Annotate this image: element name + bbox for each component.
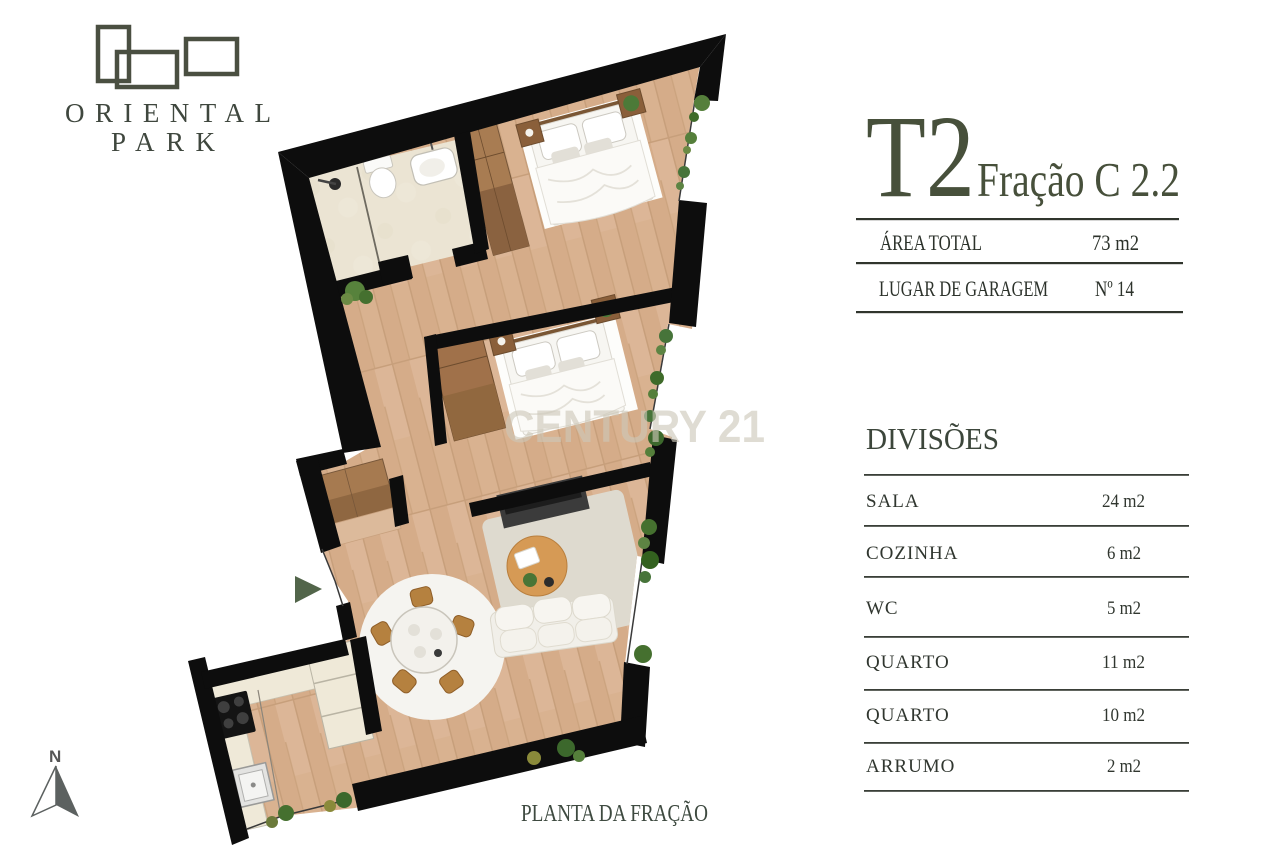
svg-text:24 m2: 24 m2	[1102, 491, 1145, 512]
svg-text:5 m2: 5 m2	[1107, 598, 1141, 619]
svg-text:LUGAR DE GARAGEM: LUGAR DE GARAGEM	[879, 276, 1048, 301]
svg-text:Fração C 2.2: Fração C 2.2	[977, 152, 1180, 207]
svg-text:ÁREA TOTAL: ÁREA TOTAL	[880, 230, 982, 255]
svg-text:N: N	[49, 747, 61, 766]
svg-text:2 m2: 2 m2	[1107, 756, 1141, 777]
svg-text:Nº 14: Nº 14	[1095, 276, 1134, 301]
svg-text:WC: WC	[866, 598, 899, 619]
svg-text:ARRUMO: ARRUMO	[866, 756, 955, 777]
svg-text:CENTURY 21: CENTURY 21	[504, 401, 765, 452]
svg-text:DIVISÕES: DIVISÕES	[866, 421, 999, 456]
svg-text:6 m2: 6 m2	[1107, 543, 1141, 564]
svg-text:QUARTO: QUARTO	[866, 652, 950, 673]
svg-text:T2: T2	[866, 92, 975, 223]
svg-text:COZINHA: COZINHA	[866, 543, 959, 564]
svg-text:73 m2: 73 m2	[1092, 230, 1139, 255]
svg-text:SALA: SALA	[866, 491, 920, 512]
svg-text:QUARTO: QUARTO	[866, 705, 950, 726]
svg-text:PLANTA DA FRAÇÃO: PLANTA DA FRAÇÃO	[521, 801, 708, 827]
svg-text:11 m2: 11 m2	[1102, 652, 1145, 673]
svg-text:10 m2: 10 m2	[1102, 705, 1145, 726]
